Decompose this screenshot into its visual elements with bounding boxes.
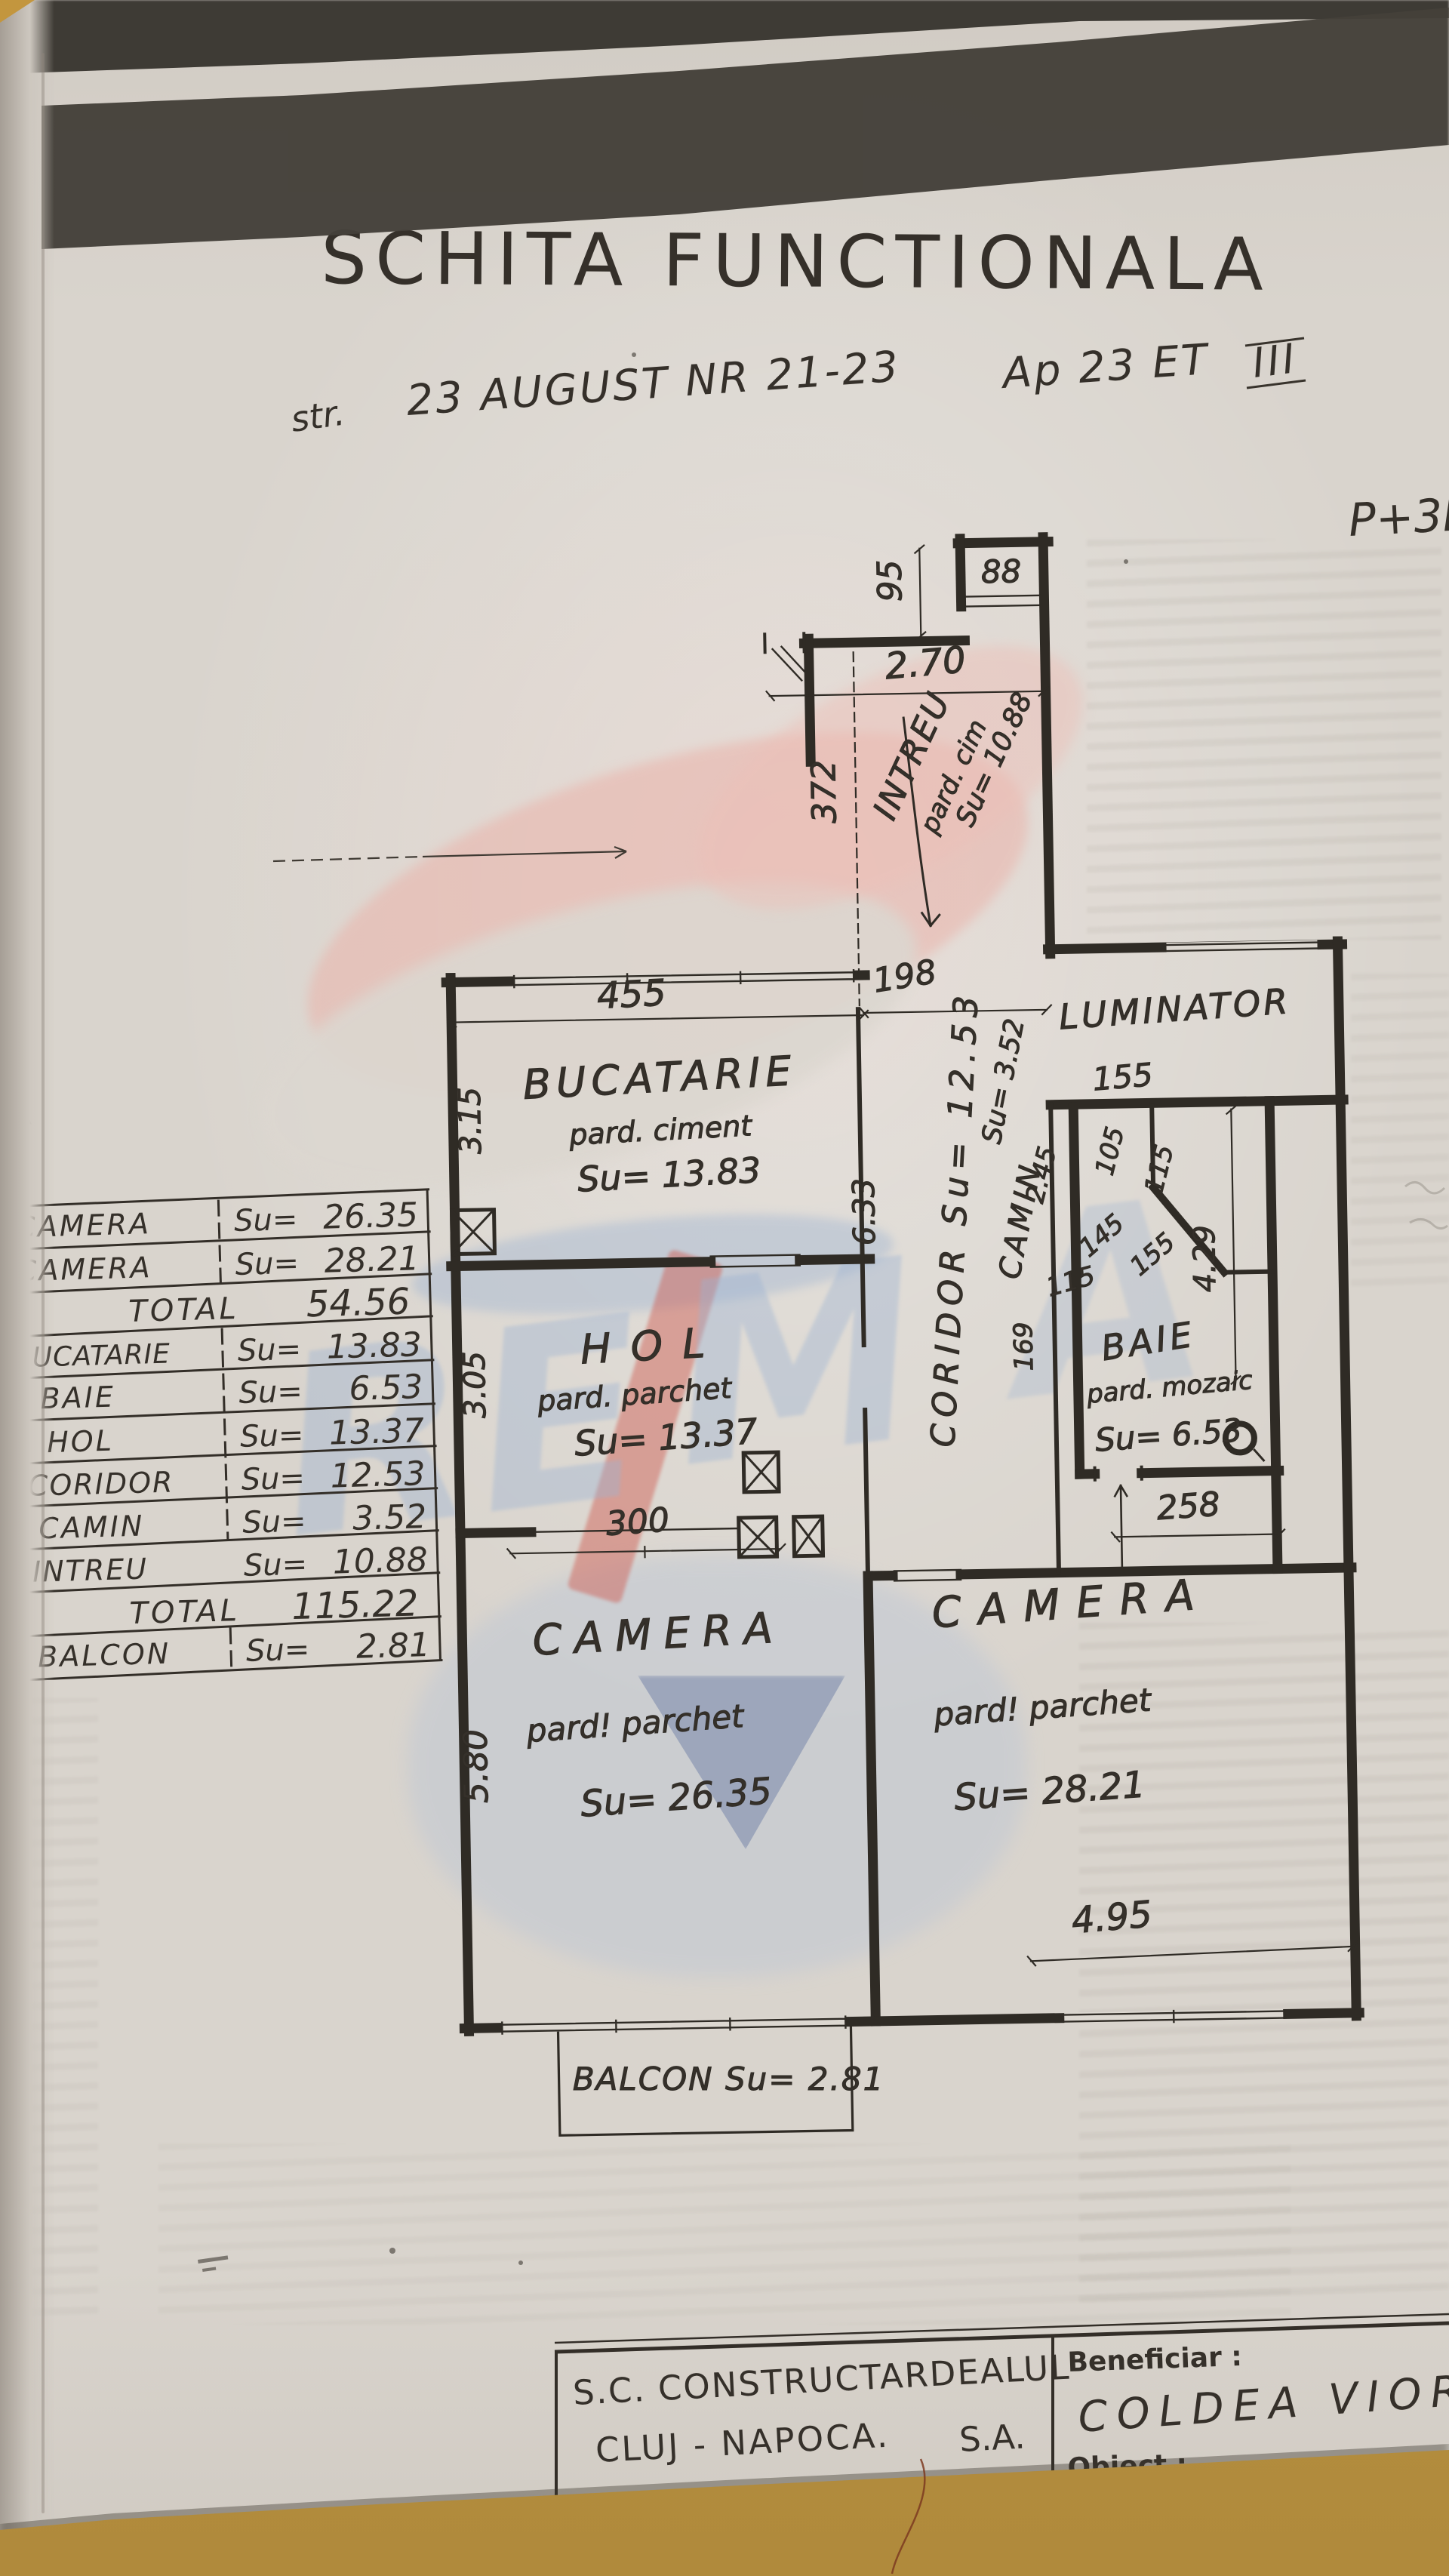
floor-plan: 95 88 2.70 372 198 455 3.15 3.05 300 5.8… [435, 532, 1363, 2137]
drawing-svg: SCHITA FUNCTIONALA str. 23 AUGUST NR 21-… [0, 0, 1449, 2576]
stray-line-arrowhead [614, 847, 626, 858]
dim-372: 372 [804, 759, 844, 823]
room-bucatarie: BUCATARIE [521, 1047, 798, 1109]
address-main: 23 AUGUST NR 21-23 [405, 342, 902, 426]
dim-line [854, 652, 860, 1005]
dim-258: 258 [1155, 1485, 1221, 1528]
company-city: CLUJ - NAPOCA. [595, 2415, 891, 2470]
room-baie-area: Su= 6.53 [1094, 1411, 1243, 1459]
stray-line [423, 851, 626, 857]
room-hol-floor: pard. parchet [536, 1371, 734, 1418]
speck [1124, 559, 1128, 564]
dim-145: 145 [1073, 1208, 1130, 1263]
address-str: str. [288, 392, 347, 439]
opening-line [894, 1570, 961, 1581]
speck [632, 352, 636, 357]
dim-105: 105 [1090, 1124, 1131, 1179]
row-prefix: Su= [243, 1547, 308, 1583]
entry-door-lines [965, 596, 1040, 607]
dim-95: 95 [871, 559, 910, 602]
speck [198, 2255, 228, 2264]
margin-scribbles [1405, 1182, 1447, 1228]
door-jamb [1095, 1467, 1142, 1480]
scanned-floor-plan-photo: RE M A SCHITA FUNCTIONALA str. 23 AUGUST… [0, 0, 1449, 2576]
dim-580: 5.80 [456, 1729, 496, 1804]
row-prefix: Su= [242, 1504, 307, 1540]
room-baie: BAIE [1098, 1313, 1198, 1368]
dim-270: 2.70 [883, 639, 967, 688]
row-prefix: Su= [233, 1202, 298, 1239]
opening-line [711, 1255, 800, 1267]
room-labels: BUCATARIE pard. ciment Su= 13.83 HOL par… [506, 679, 1310, 2104]
dim-455: 455 [596, 971, 667, 1017]
row-value: 115.22 [291, 1582, 419, 1628]
room-camera-left-floor: pard! parchet [525, 1697, 746, 1750]
vent-shaft-box [794, 1516, 823, 1556]
row-value: 6.53 [349, 1368, 423, 1408]
dim-198: 198 [870, 953, 939, 1001]
wall-segment [858, 1009, 868, 1576]
address-line: str. 23 AUGUST NR 21-23 Ap 23 ET III P+3… [288, 334, 1449, 547]
dim-88: 88 [980, 552, 1021, 590]
dim-line [1226, 1106, 1240, 1383]
wall-segment [1269, 1101, 1278, 1569]
dim-305: 3.05 [457, 1351, 494, 1419]
row-label: HOL [47, 1424, 115, 1459]
row-label: BALCON [38, 1637, 171, 1674]
wall-segment [808, 639, 811, 762]
row-prefix: Su= [241, 1461, 306, 1497]
room-hol: HOL [579, 1319, 725, 1374]
thread-on-desk [875, 2453, 966, 2576]
area-table: CAMERA Su= 26.35 CAMERA Su= 28.21 TOTAL … [0, 1190, 443, 1682]
row-value: 12.53 [330, 1454, 426, 1495]
room-camera-left: CAMERA [531, 1603, 786, 1665]
dim-495: 4.95 [1069, 1893, 1153, 1942]
speck [202, 2267, 216, 2271]
wall-segment [1043, 537, 1051, 954]
paper-left-curl-line [42, 53, 45, 2513]
room-camera-right-floor: pard! parchet [932, 1681, 1153, 1733]
wall-segment [868, 1576, 875, 2021]
stray-annotation-line [273, 847, 626, 861]
page-title: SCHITA FUNCTIONALA [321, 216, 1272, 307]
room-camin-area: Su= 3.52 [977, 1016, 1031, 1146]
door-arrow [1115, 1485, 1128, 1570]
dim-633: 6.33 [847, 1178, 883, 1246]
dim-429: 4.29 [1187, 1225, 1223, 1293]
dim-315: 3.15 [453, 1087, 489, 1155]
table-row: HOL Su= 13.37 [46, 1411, 424, 1460]
stray-line-dashed [273, 857, 423, 861]
room-baie-floor: pard. mozaic [1084, 1365, 1254, 1410]
row-value: 28.21 [324, 1239, 420, 1280]
vent-shaft-box [739, 1517, 777, 1557]
row-value: 26.35 [322, 1196, 418, 1236]
row-value: 3.52 [352, 1497, 427, 1538]
wall-segment [460, 1532, 531, 1534]
floors-label: P+3E [1347, 488, 1449, 547]
beneficiar-label: Beneficiar : [1067, 2341, 1243, 2378]
company-name: S.C. CONSTRUCTARDEALUL [572, 2347, 1072, 2413]
dim-115a: 115 [1139, 1142, 1180, 1197]
row-prefix: Su= [235, 1246, 300, 1282]
speck [389, 2248, 395, 2254]
wall-segment [451, 1259, 870, 1266]
scribble [1405, 1182, 1444, 1193]
room-camera-right-area: Su= 28.21 [952, 1763, 1146, 1819]
wall-segment [960, 539, 961, 607]
room-luminator: LUMINATOR [1057, 980, 1291, 1037]
room-bucatarie-floor: pard. ciment [568, 1109, 754, 1152]
dim-300: 300 [605, 1500, 670, 1543]
dim-169: 169 [1008, 1322, 1039, 1371]
dim-line [915, 546, 925, 640]
scribble [1410, 1219, 1447, 1228]
room-camera-right: CAMERA [931, 1570, 1213, 1639]
row-value: 13.37 [328, 1411, 424, 1452]
room-camin: CAMIN [992, 1159, 1049, 1282]
row-prefix: Su= [238, 1374, 303, 1411]
row-label: TOTAL [129, 1593, 241, 1631]
wall-segment [958, 542, 1048, 543]
speck [518, 2261, 523, 2265]
door-swing-stroke [773, 646, 808, 681]
row-value: 54.56 [306, 1281, 411, 1326]
row-prefix: Su= [245, 1632, 310, 1668]
room-bucatarie-area: Su= 13.83 [577, 1150, 762, 1200]
room-hol-area: Su= 13.37 [573, 1411, 758, 1464]
table-right-border [427, 1190, 440, 1661]
room-camera-left-area: Su= 26.35 [579, 1770, 773, 1826]
dim-155-luminator: 155 [1091, 1056, 1154, 1098]
wall-segment [1224, 1272, 1272, 1273]
room-balcon: BALCON Su= 2.81 [573, 2060, 884, 2097]
title-block-top-border [555, 2323, 1449, 2352]
paper-left-edge-shadow [0, 0, 54, 2576]
company-suffix: S.A. [958, 2416, 1026, 2459]
row-value: 13.83 [326, 1325, 422, 1366]
row-value: 2.81 [355, 1626, 430, 1667]
row-prefix: Su= [239, 1418, 304, 1454]
address-ap: Ap 23 ET [998, 335, 1211, 399]
dim-line [1112, 1529, 1284, 1541]
room-coridor: CORIDOR Su= 12.53 [924, 988, 986, 1448]
dim-155a: 155 [1124, 1227, 1181, 1282]
bathroom-door [1095, 1467, 1143, 1571]
wall-segment [1080, 1471, 1279, 1475]
dim-line [1028, 1942, 1358, 1966]
wall-segment [1051, 1100, 1343, 1105]
row-value: 10.88 [332, 1540, 428, 1581]
vent-shaft-box [743, 1452, 779, 1492]
row-prefix: Su= [237, 1332, 302, 1368]
row-label: TOTAL [128, 1291, 240, 1329]
